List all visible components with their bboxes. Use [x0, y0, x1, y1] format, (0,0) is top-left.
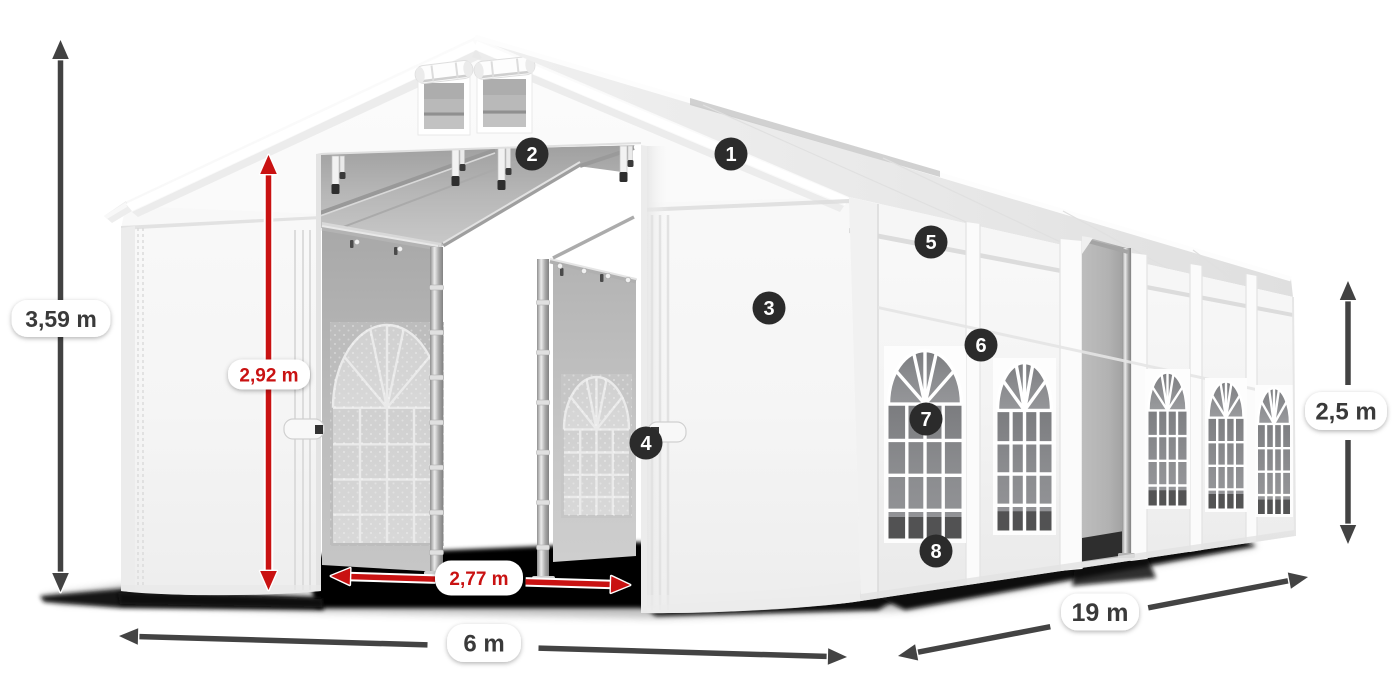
- svg-text:6: 6: [975, 335, 986, 357]
- svg-text:7: 7: [920, 409, 931, 431]
- svg-text:19 m: 19 m: [1072, 599, 1129, 627]
- svg-text:4: 4: [640, 433, 652, 455]
- svg-text:8: 8: [930, 541, 941, 563]
- svg-text:1: 1: [725, 144, 736, 166]
- svg-text:6 m: 6 m: [463, 631, 504, 658]
- svg-text:2,92 m: 2,92 m: [239, 365, 298, 386]
- svg-text:2,5 m: 2,5 m: [1315, 399, 1376, 426]
- svg-text:2: 2: [526, 144, 537, 166]
- svg-text:2,77 m: 2,77 m: [449, 569, 508, 590]
- svg-text:3: 3: [763, 298, 774, 320]
- svg-text:5: 5: [925, 232, 936, 254]
- svg-text:3,59 m: 3,59 m: [25, 306, 97, 332]
